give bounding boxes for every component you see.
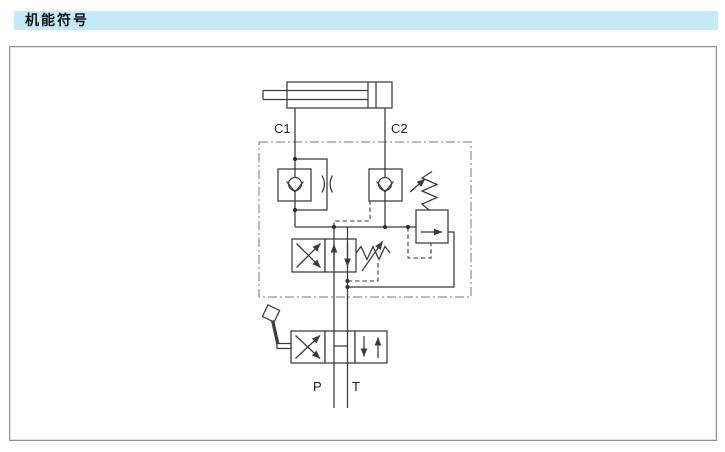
lever-handle — [273, 321, 279, 345]
check-valve-with-orifice — [278, 157, 333, 212]
label-c1: C1 — [274, 121, 291, 136]
check-ball — [379, 178, 392, 191]
relief-spring — [422, 172, 437, 211]
relief-valve-box — [416, 210, 448, 243]
orifice-arc-right — [330, 176, 332, 193]
position-through — [325, 239, 356, 272]
check-ball — [289, 178, 302, 191]
check-valve — [334, 169, 402, 229]
lever-directional-valve — [262, 305, 387, 363]
label-t: T — [352, 379, 360, 394]
orifice-arc-left — [322, 176, 324, 193]
label-p: P — [313, 379, 322, 394]
flow-control-valve — [292, 239, 390, 283]
hydraulic-schematic: C1 C2 — [0, 0, 725, 452]
hydraulic-cylinder — [263, 82, 392, 108]
label-c2: C2 — [391, 121, 408, 136]
lever-link — [277, 344, 291, 349]
position-parallel — [355, 331, 387, 363]
position-centre — [325, 331, 355, 363]
pilot-line — [334, 201, 370, 227]
valve-spring — [356, 247, 390, 260]
lever-knob — [262, 305, 279, 322]
